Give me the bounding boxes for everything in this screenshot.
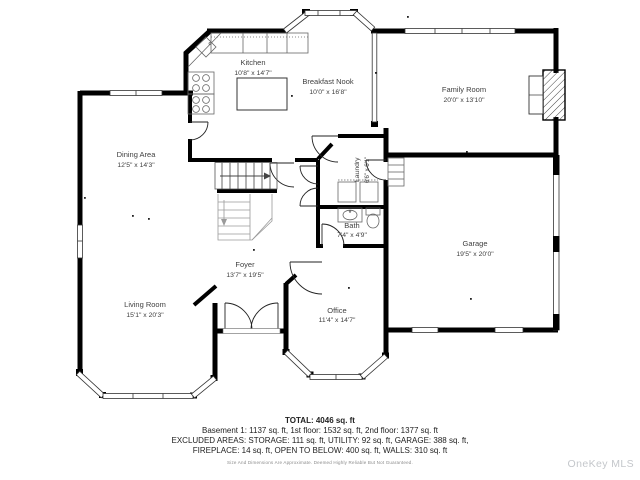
svg-text:Garage: Garage — [462, 239, 487, 248]
room-label-laundry: Laundry 6'6" x 6'1" — [354, 157, 371, 183]
svg-text:Laundry: Laundry — [354, 157, 361, 182]
svg-text:13'7" x 19'5": 13'7" x 19'5" — [226, 272, 264, 279]
svg-text:10'8" x 14'7": 10'8" x 14'7" — [234, 70, 272, 77]
room-label-family-room: Family Room 20'0" x 13'10" — [442, 85, 486, 104]
svg-text:Living Room: Living Room — [124, 300, 166, 309]
svg-text:7'4" x 4'9": 7'4" x 4'9" — [337, 232, 367, 239]
room-label-office: Office 11'4" x 14'7" — [319, 306, 356, 324]
floor-areas: Basement 1: 1137 sq. ft, 1st floor: 1532… — [0, 426, 640, 436]
svg-text:Office: Office — [327, 306, 346, 315]
room-label-foyer: Foyer 13'7" x 19'5" — [226, 260, 264, 279]
svg-text:Bath: Bath — [344, 221, 359, 230]
kitchen-island — [237, 78, 287, 110]
floor-plan-page: Kitchen 10'8" x 14'7" Breakfast Nook 10'… — [0, 0, 640, 480]
floor-plan-canvas: Kitchen 10'8" x 14'7" Breakfast Nook 10'… — [0, 0, 640, 412]
room-label-garage: Garage 19'5" x 20'0" — [456, 239, 494, 258]
svg-text:12'5" x 14'3": 12'5" x 14'3" — [117, 162, 155, 169]
excluded-areas-line1: EXCLUDED AREAS: STORAGE: 111 sq. ft, UTI… — [0, 436, 640, 446]
bath-sink — [343, 210, 357, 220]
svg-text:15'1" x 20'3": 15'1" x 20'3" — [126, 312, 164, 319]
toilet-bowl — [367, 214, 379, 228]
washer-dryer — [338, 180, 378, 202]
onekey-mls-watermark: OneKey MLS — [568, 458, 634, 470]
svg-text:11'4" x 14'7": 11'4" x 14'7" — [319, 317, 356, 324]
room-label-kitchen: Kitchen 10'8" x 14'7" — [234, 58, 272, 77]
staircase-open-to-below — [218, 194, 272, 240]
disclaimer: Size And Dimensions Are Approximate. Dee… — [0, 460, 640, 465]
svg-text:20'0" x 13'10": 20'0" x 13'10" — [443, 97, 485, 104]
area-summary: TOTAL: 4046 sq. ft Basement 1: 1137 sq. … — [0, 415, 640, 465]
staircase-up — [215, 163, 277, 190]
svg-text:6'6" x 6'1": 6'6" x 6'1" — [365, 157, 371, 183]
svg-text:Dining Area: Dining Area — [117, 150, 157, 159]
room-label-breakfast-nook: Breakfast Nook 10'0" x 16'8" — [302, 77, 354, 96]
room-label-living-room: Living Room 15'1" x 20'3" — [124, 300, 166, 319]
svg-text:Kitchen: Kitchen — [240, 58, 265, 67]
svg-text:19'5" x 20'0": 19'5" x 20'0" — [456, 251, 494, 258]
wall-corner-blocks — [76, 9, 389, 399]
room-label-bath: Bath 7'4" x 4'9" — [337, 221, 367, 239]
svg-text:Breakfast Nook: Breakfast Nook — [302, 77, 354, 86]
svg-text:Foyer: Foyer — [235, 260, 255, 269]
svg-text:10'0" x 16'8": 10'0" x 16'8" — [309, 89, 347, 96]
room-label-dining-area: Dining Area 12'5" x 14'3" — [117, 150, 157, 169]
excluded-areas-line2: FIREPLACE: 14 sq. ft, OPEN TO BELOW: 400… — [0, 446, 640, 456]
total-area: TOTAL: 4046 sq. ft — [0, 415, 640, 426]
garage-steps — [388, 158, 404, 186]
fireplace — [529, 70, 565, 120]
svg-text:Family Room: Family Room — [442, 85, 486, 94]
